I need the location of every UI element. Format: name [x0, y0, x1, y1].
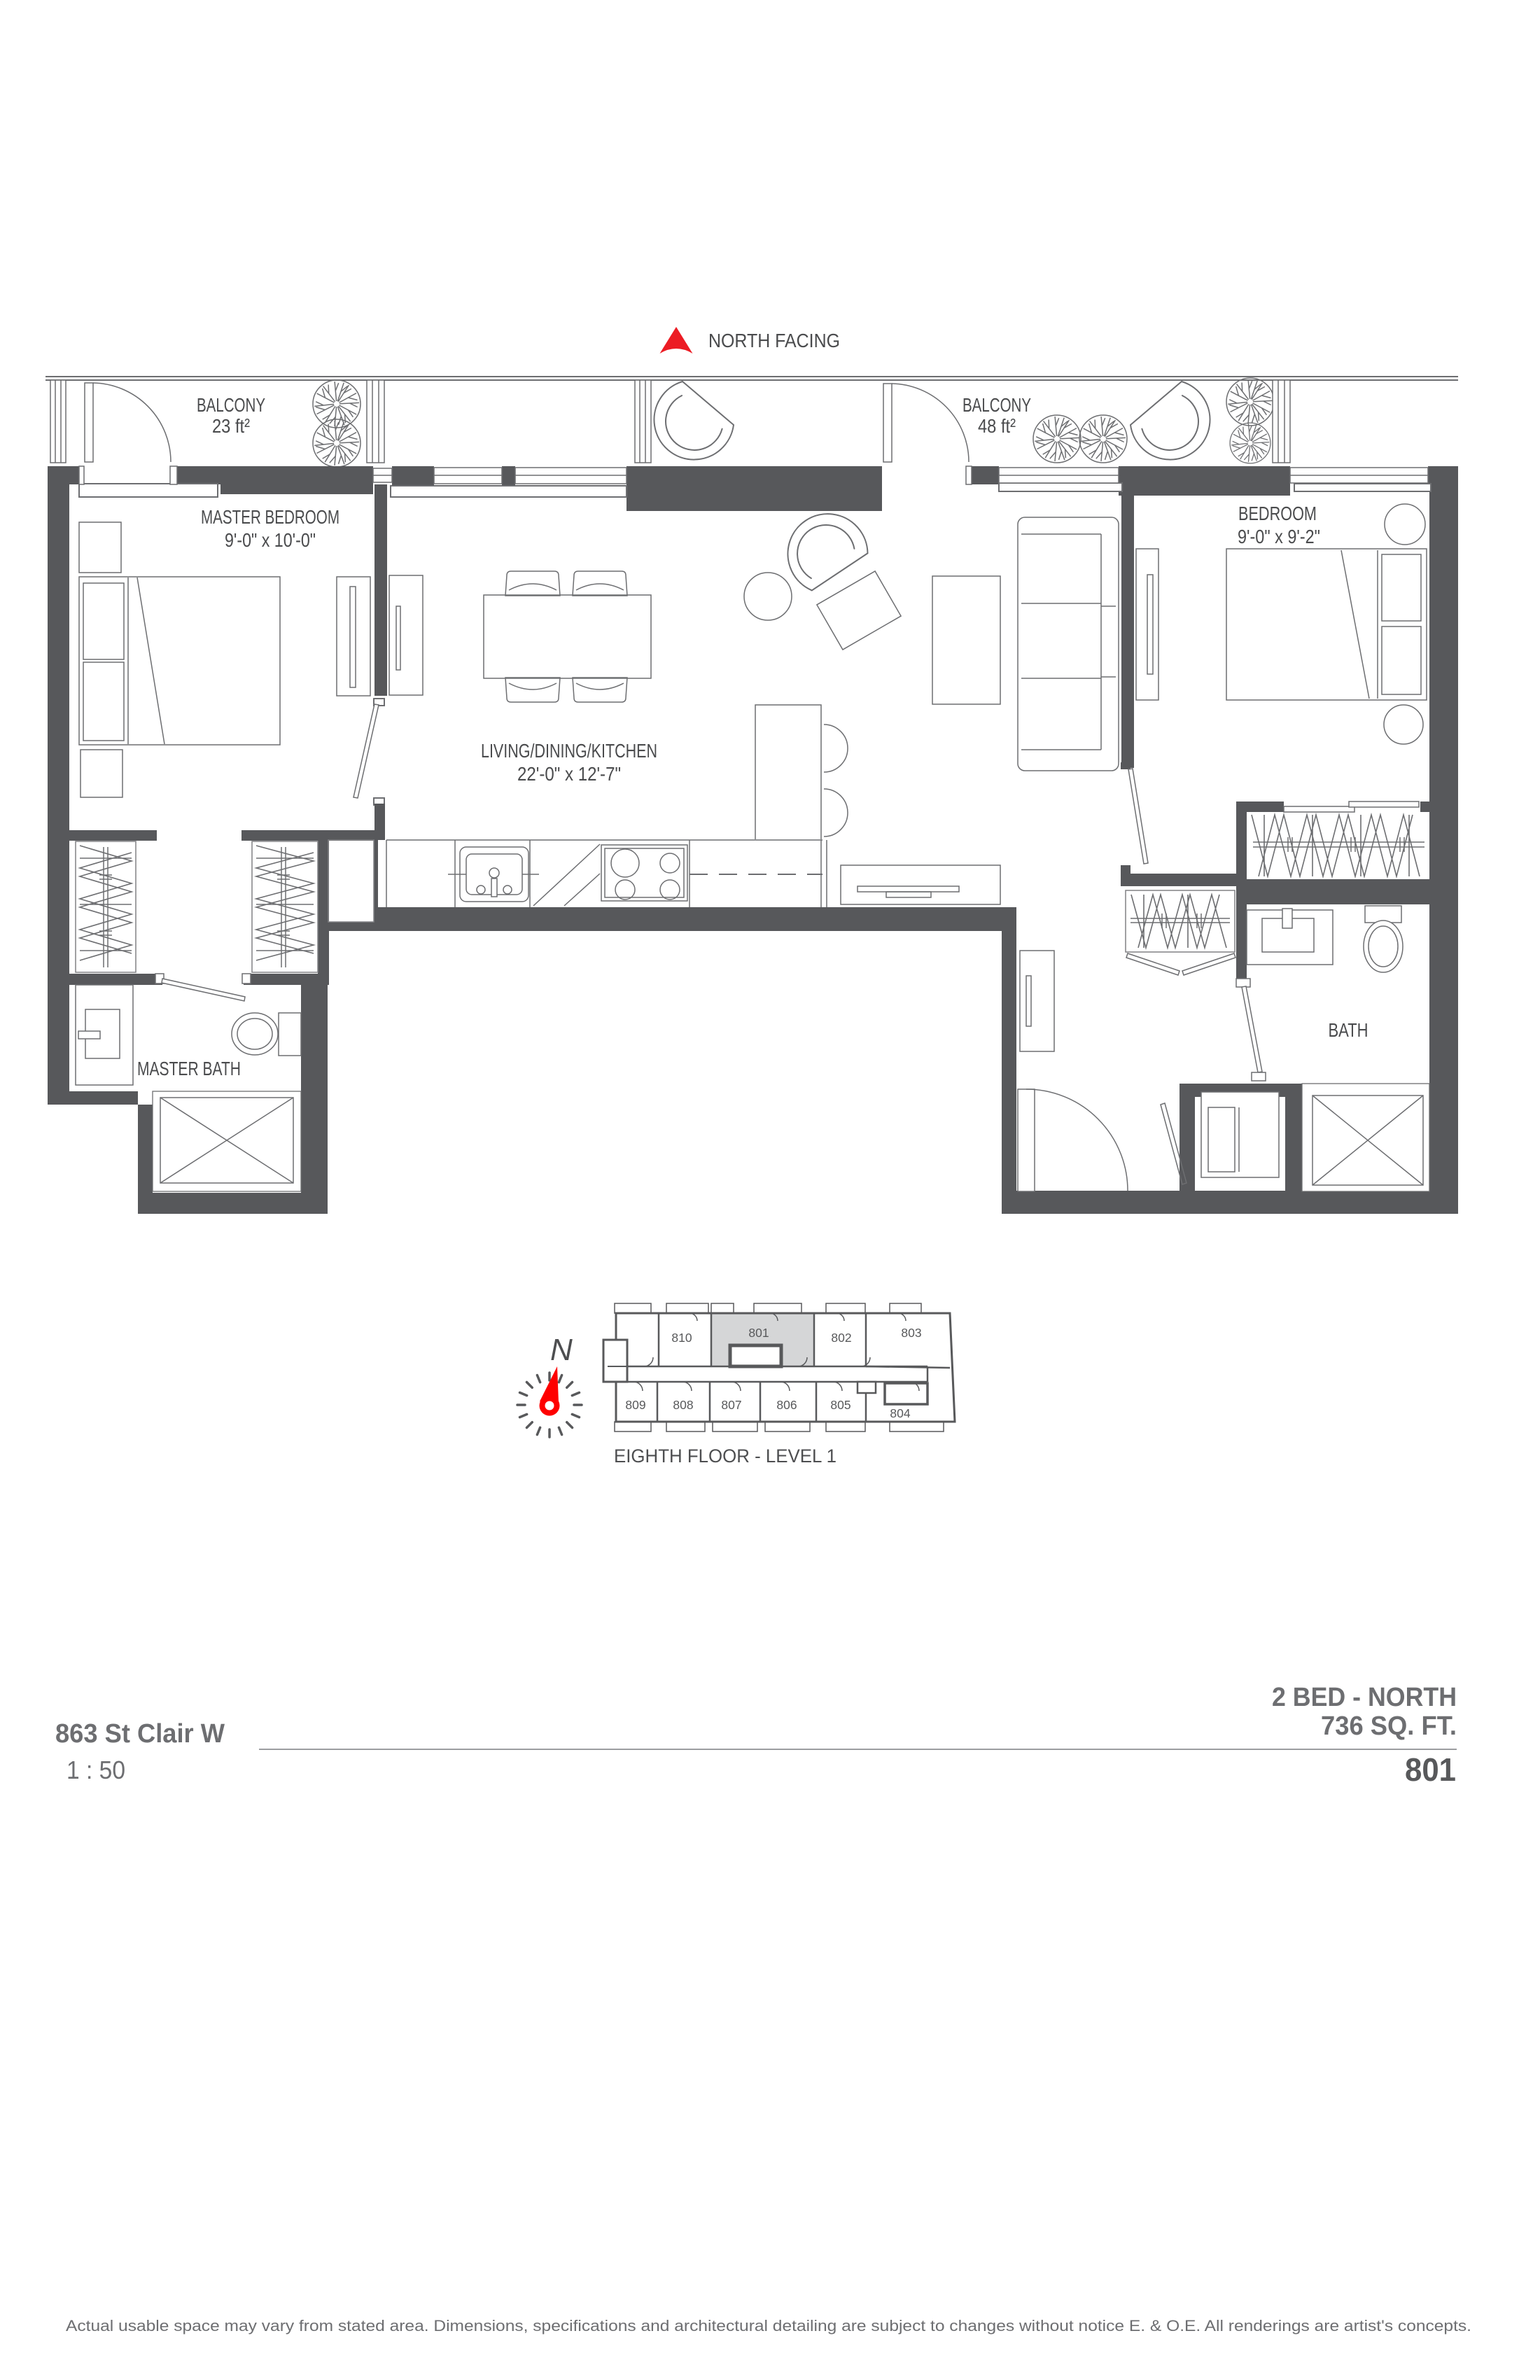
- svg-text:Actual usable space may vary f: Actual usable space may vary from stated…: [66, 2317, 1471, 2334]
- svg-text:804: 804: [890, 1406, 910, 1420]
- svg-text:801: 801: [1405, 1751, 1456, 1788]
- svg-text:BALCONY: BALCONY: [197, 394, 265, 416]
- svg-text:23 ft²: 23 ft²: [212, 415, 250, 437]
- svg-text:N: N: [550, 1333, 573, 1367]
- svg-text:736 SQ. FT.: 736 SQ. FT.: [1321, 1711, 1457, 1741]
- svg-text:MASTER BEDROOM: MASTER BEDROOM: [201, 506, 339, 528]
- svg-text:802: 802: [831, 1331, 851, 1345]
- svg-text:805: 805: [830, 1398, 850, 1412]
- svg-text:808: 808: [673, 1398, 693, 1412]
- svg-text:863 St Clair W: 863 St Clair W: [55, 1719, 225, 1749]
- svg-text:BALCONY: BALCONY: [962, 394, 1031, 416]
- svg-text:806: 806: [776, 1398, 797, 1412]
- svg-text:807: 807: [721, 1398, 741, 1412]
- svg-text:2 BED - NORTH: 2 BED - NORTH: [1272, 1683, 1457, 1712]
- svg-text:LIVING/DINING/KITCHEN: LIVING/DINING/KITCHEN: [481, 740, 657, 762]
- svg-text:MASTER BATH: MASTER BATH: [137, 1058, 241, 1079]
- svg-text:1 : 50: 1 : 50: [66, 1756, 125, 1784]
- svg-text:48 ft²: 48 ft²: [978, 415, 1016, 437]
- svg-text:BEDROOM: BEDROOM: [1238, 503, 1317, 524]
- svg-text:22'-0" x 12'-7": 22'-0" x 12'-7": [517, 763, 621, 785]
- svg-text:NORTH FACING: NORTH FACING: [708, 330, 840, 351]
- svg-text:EIGHTH FLOOR - LEVEL 1: EIGHTH FLOOR - LEVEL 1: [614, 1445, 836, 1466]
- svg-text:9'-0" x 10'-0": 9'-0" x 10'-0": [225, 529, 316, 551]
- svg-text:9'-0" x 9'-2": 9'-0" x 9'-2": [1238, 526, 1320, 547]
- svg-text:810: 810: [671, 1331, 692, 1345]
- svg-text:801: 801: [748, 1326, 769, 1340]
- svg-text:803: 803: [901, 1326, 921, 1340]
- svg-text:809: 809: [625, 1398, 645, 1412]
- svg-text:BATH: BATH: [1329, 1019, 1368, 1041]
